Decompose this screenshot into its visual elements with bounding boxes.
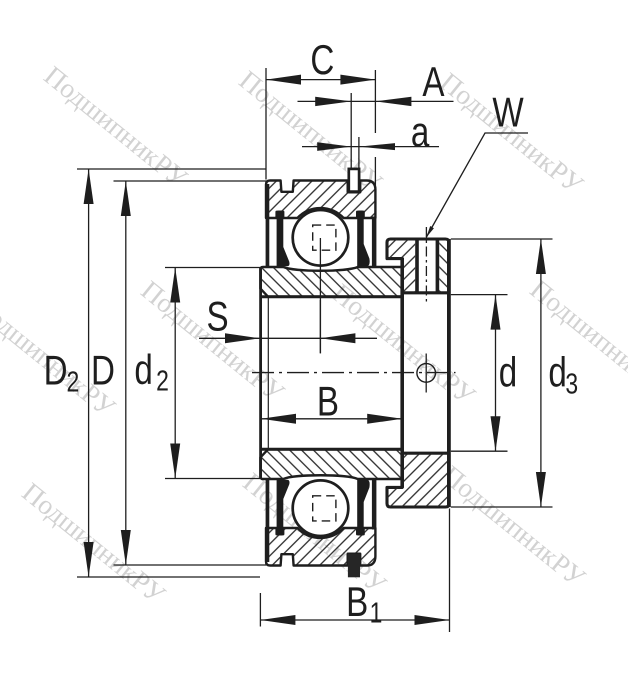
svg-text:B: B (317, 379, 339, 426)
svg-text:2: 2 (67, 365, 80, 398)
svg-text:C: C (310, 37, 334, 84)
svg-text:2: 2 (156, 364, 169, 397)
svg-text:d: d (499, 350, 517, 397)
svg-text:W: W (492, 90, 524, 137)
svg-text:A: A (422, 59, 445, 106)
svg-text:B: B (346, 579, 368, 626)
svg-text:d: d (134, 347, 152, 394)
svg-text:a: a (411, 109, 430, 156)
svg-text:D: D (91, 348, 115, 395)
svg-text:3: 3 (565, 367, 578, 400)
svg-text:1: 1 (370, 596, 383, 629)
svg-text:d: d (548, 350, 566, 397)
svg-text:S: S (207, 294, 229, 341)
svg-text:D: D (44, 348, 68, 395)
